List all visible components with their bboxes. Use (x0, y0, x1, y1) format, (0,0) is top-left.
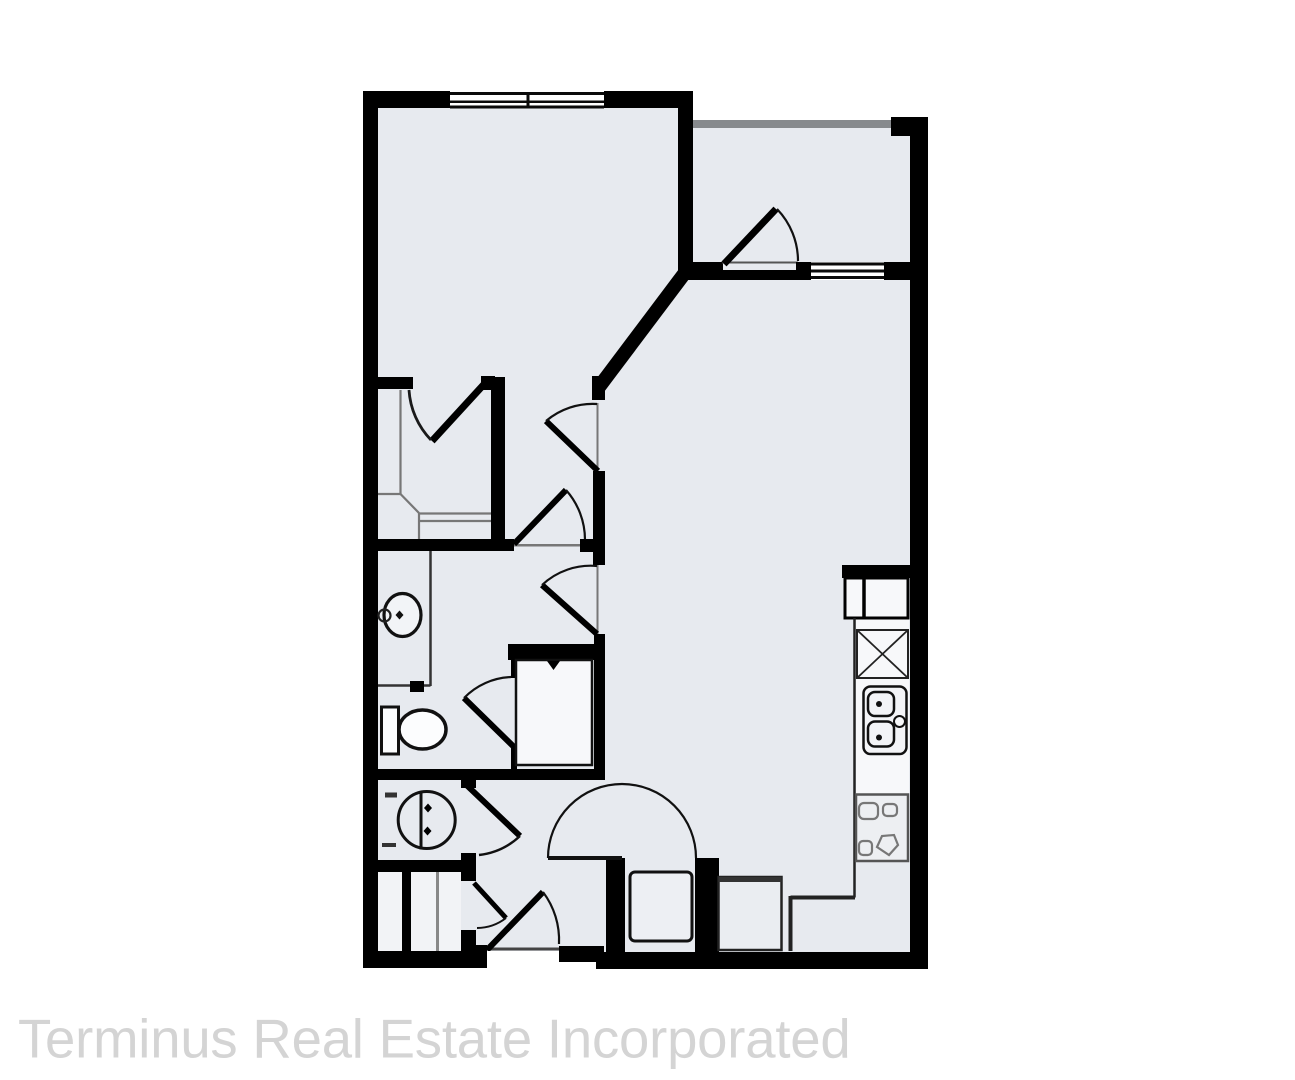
svg-text:Terminus Real Estate Incorpora: Terminus Real Estate Incorporated (18, 1009, 851, 1070)
